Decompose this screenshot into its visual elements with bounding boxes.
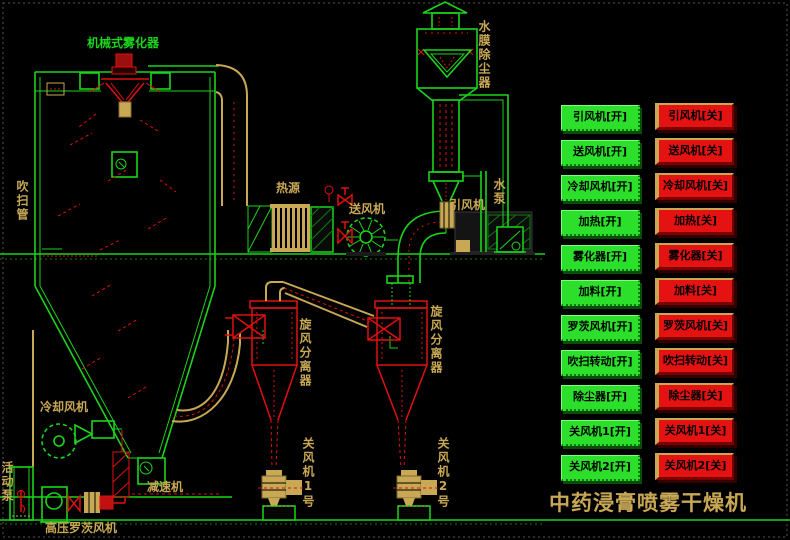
dust-collector-unit xyxy=(417,2,477,201)
rotary-valve-2-unit xyxy=(393,470,441,520)
induced-fan-label: 引风机 xyxy=(449,198,485,212)
roots-blower-off-button[interactable]: 罗茨风机[关] xyxy=(655,313,734,340)
rotary-valve-2-off-button[interactable]: 关风机2[关] xyxy=(655,453,734,480)
heat-source-label: 热源 xyxy=(276,181,300,195)
hot-air-duct xyxy=(216,65,272,252)
supply-fan-label: 送风机 xyxy=(349,202,385,216)
cooling-fan-off-button[interactable]: 冷却风机[关] xyxy=(655,173,734,200)
roots-blower-label: 高压罗茨风机 xyxy=(45,521,117,535)
feed-inlet xyxy=(47,83,64,95)
rotary-valve-1-label: 关风机1号 xyxy=(301,437,315,509)
page-title: 中药浸膏喷雾干燥机 xyxy=(549,487,747,517)
induced-fan-off-button[interactable]: 引风机[关] xyxy=(655,103,734,130)
feeding-off-button[interactable]: 加料[关] xyxy=(655,278,734,305)
reducer-label: 减速机 xyxy=(147,480,183,494)
cooling-fan-on-button[interactable]: 冷却风机[开] xyxy=(561,175,640,201)
rotary-valve-1-off-button[interactable]: 关风机1[关] xyxy=(655,418,734,445)
feed-pump-label: 活动泵 xyxy=(0,461,14,503)
cooling-fan-unit xyxy=(42,421,122,458)
heating-on-button[interactable]: 加热[开] xyxy=(561,210,640,236)
purge-rotation-off-button[interactable]: 吹扫转动[关] xyxy=(655,348,734,375)
rotary-valve-2-label: 关风机2号 xyxy=(436,437,450,509)
heating-off-button[interactable]: 加热[关] xyxy=(655,208,734,235)
scada-screen: 机械式雾化器 吹扫管 热源 送风机 引风机 水泵 水膜除尘器 旋风分离器 旋风分… xyxy=(0,0,790,540)
exhaust-elbow xyxy=(398,211,446,283)
dust-collector-on-button[interactable]: 除尘器[开] xyxy=(561,385,640,411)
rotary-valve-2-on-button[interactable]: 关风机2[开] xyxy=(561,455,640,481)
feeding-on-button[interactable]: 加料[开] xyxy=(561,280,640,306)
water-pump-label: 水泵 xyxy=(492,178,506,206)
supply-fan-unit xyxy=(338,218,398,256)
cyclone-2-label: 旋风分离器 xyxy=(429,305,443,375)
purge-pipe-label: 吹扫管 xyxy=(15,180,29,222)
atomizer-off-button[interactable]: 雾化器[关] xyxy=(655,243,734,270)
dust-collector-label: 水膜除尘器 xyxy=(477,20,491,90)
atomizer-label: 机械式雾化器 xyxy=(87,36,159,50)
dust-collector-off-button[interactable]: 除尘器[关] xyxy=(655,383,734,410)
induced-fan-on-button[interactable]: 引风机[开] xyxy=(561,105,640,131)
roots-blower-unit xyxy=(40,487,125,522)
purge-rotation-on-button[interactable]: 吹扫转动[开] xyxy=(561,350,640,376)
cooling-fan-label: 冷却风机 xyxy=(40,400,88,414)
supply-fan-on-button[interactable]: 送风机[开] xyxy=(561,140,640,166)
supply-fan-off-button[interactable]: 送风机[关] xyxy=(655,138,734,165)
cyclone-1-label: 旋风分离器 xyxy=(298,318,312,388)
cyclone-2-unit xyxy=(368,276,427,468)
rotary-valve-1-unit xyxy=(258,470,306,520)
roots-blower-on-button[interactable]: 罗茨风机[开] xyxy=(561,315,640,341)
rotary-valve-1-on-button[interactable]: 关风机1[开] xyxy=(561,420,640,446)
atomizer-on-button[interactable]: 雾化器[开] xyxy=(561,245,640,271)
atomizer-unit xyxy=(90,54,160,117)
